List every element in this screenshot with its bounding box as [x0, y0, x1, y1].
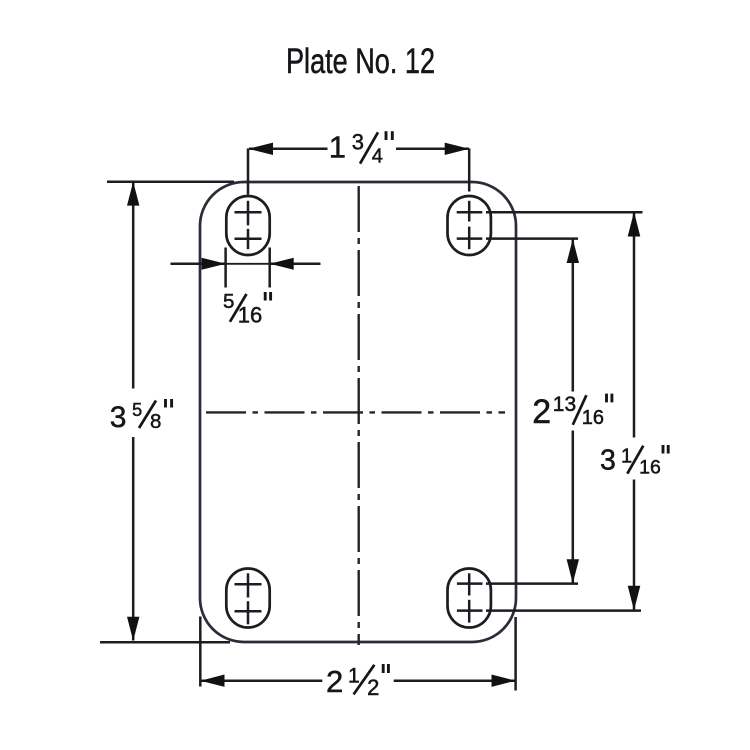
svg-text:3: 3 — [600, 445, 616, 477]
svg-text:13: 13 — [553, 393, 576, 416]
svg-text:3: 3 — [110, 401, 127, 434]
svg-text:2: 2 — [532, 393, 551, 431]
svg-text:3: 3 — [352, 130, 364, 155]
svg-text:1: 1 — [348, 664, 360, 687]
svg-text:16: 16 — [639, 457, 661, 479]
svg-text:16: 16 — [238, 302, 262, 327]
svg-text:5: 5 — [132, 400, 142, 420]
svg-text:2: 2 — [326, 664, 343, 699]
svg-text:2: 2 — [367, 675, 379, 700]
svg-text:Plate No. 12: Plate No. 12 — [286, 42, 435, 81]
svg-text:16: 16 — [582, 407, 604, 429]
svg-text:1: 1 — [329, 130, 346, 165]
svg-text:4: 4 — [372, 145, 383, 167]
svg-text:1: 1 — [621, 445, 632, 467]
svg-text:5: 5 — [223, 290, 234, 313]
svg-text:8: 8 — [150, 410, 161, 433]
